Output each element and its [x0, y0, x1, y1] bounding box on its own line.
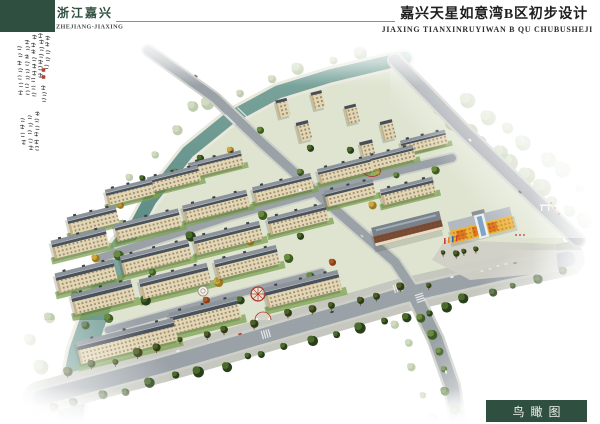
presentation-board: 浙江嘉兴 ZHEJIANG-JIAXING 嘉兴天星如意湾B区初步设计 JIAX… — [0, 0, 600, 424]
region-subtitle: ZHEJIANG-JIAXING — [56, 23, 123, 30]
header-rule — [116, 21, 395, 22]
region-title: 浙江嘉兴 — [57, 4, 113, 21]
project-title: 嘉兴天星如意湾B区初步设计 — [400, 3, 588, 23]
project-subtitle: JIAXING TIANXINRUYIWAN B QU CHUBUSHEJI — [382, 25, 593, 34]
logo-block — [0, 0, 55, 32]
caption-label: 鸟瞰图 — [506, 403, 566, 420]
caption-box: 鸟瞰图 — [486, 400, 587, 422]
aerial-rendering — [0, 0, 600, 424]
